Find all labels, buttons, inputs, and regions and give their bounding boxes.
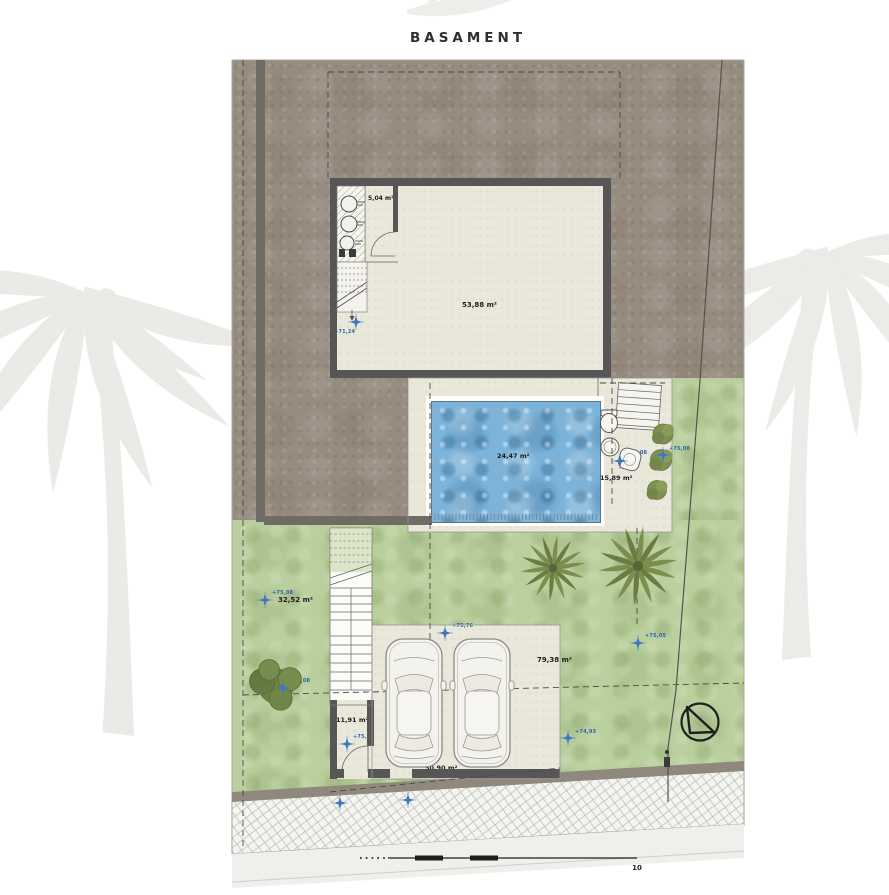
page-title: BASAMENT — [312, 30, 624, 46]
level-marker: +71,24 — [334, 329, 355, 335]
level-marker: +75,08 — [272, 590, 293, 596]
room-label-basement: 53,88 m² — [462, 301, 497, 309]
floor-plan-page: BASAMENT — [0, 0, 889, 895]
scale-label-1: 1 — [386, 864, 391, 872]
scale-label-5: 5 — [496, 864, 501, 872]
exterior-stairs — [330, 528, 372, 705]
boundary-limit-label: LÍMIT — [237, 796, 242, 812]
room-label-lawn-left: 32,52 m² — [278, 596, 313, 604]
level-marker: +75,48 — [353, 734, 374, 740]
room-label-storage: 11,91 m² — [336, 716, 368, 724]
scale-bar — [360, 856, 637, 861]
pool-overflow-grate — [431, 514, 599, 520]
scale-label-2: 2 — [413, 864, 418, 872]
room-label-lawn-right: 79,38 m² — [537, 656, 572, 664]
basement-room — [330, 178, 611, 378]
level-marker: +74,05 — [414, 790, 435, 796]
room-label-poolbath: 15,89 m² — [600, 474, 632, 482]
level-marker: +75,08 — [289, 678, 310, 684]
scale-label-4: 4 — [468, 864, 473, 872]
pool — [431, 401, 601, 523]
carport-area — [372, 625, 560, 779]
room-label-pool: 24,47 m² — [497, 452, 529, 460]
room-label-storage-small: 5,04 m² — [368, 195, 394, 202]
road — [232, 824, 744, 888]
scale-label-3: 3 — [441, 864, 446, 872]
scale-label-10: 10 — [632, 864, 642, 872]
scale-label-0: 0 — [358, 864, 363, 872]
level-marker: +75,08 — [626, 450, 647, 456]
level-marker: +74,93 — [575, 729, 596, 735]
room-label-carport: 30,90 m² — [425, 764, 457, 772]
palm-watermark-left-icon — [0, 254, 269, 736]
level-marker: +75,76 — [452, 623, 473, 629]
level-marker: +74,76 — [346, 793, 367, 799]
level-marker: +75,05 — [645, 633, 666, 639]
level-marker: +75,08 — [669, 446, 690, 452]
